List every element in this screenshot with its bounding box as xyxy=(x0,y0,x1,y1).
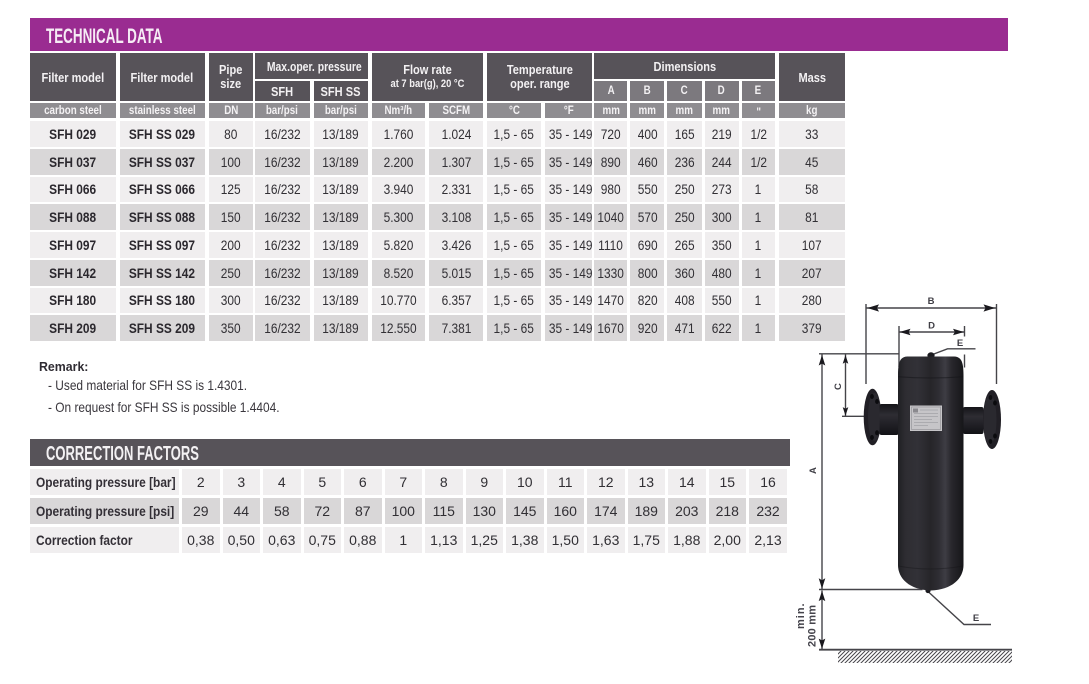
svg-text:E: E xyxy=(973,613,979,624)
svg-text:D: D xyxy=(928,321,935,332)
svg-text:B: B xyxy=(928,296,935,307)
svg-text:C: C xyxy=(833,383,844,390)
svg-text:200 mm: 200 mm xyxy=(807,605,819,647)
svg-text:A: A xyxy=(808,467,819,474)
svg-text:min.: min. xyxy=(795,602,807,629)
svg-text:E: E xyxy=(957,338,963,349)
